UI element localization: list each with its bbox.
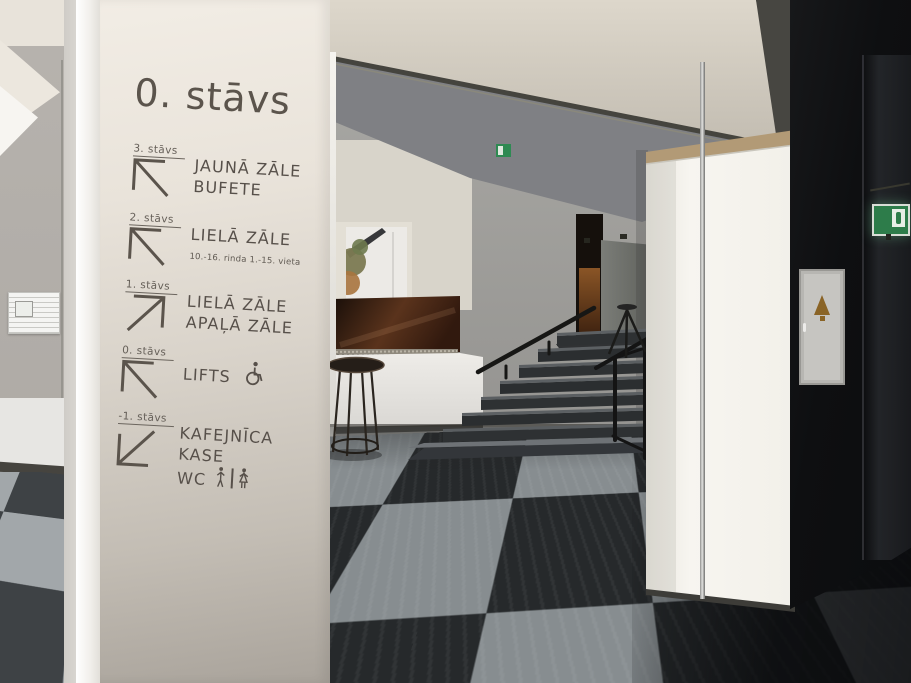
destination-text: WC xyxy=(177,468,207,489)
icon-row xyxy=(239,360,264,387)
pillar-edge xyxy=(76,0,101,683)
sign-title: 0. stāvs xyxy=(133,70,292,123)
entry-destinations: LIFTS xyxy=(182,357,264,389)
fire-hose-cabinet xyxy=(799,269,845,385)
photo-lobby-scene: 0. stāvs 3. stāvs JAUNĀ ZĀLE BUFETE 2. s… xyxy=(0,0,911,683)
destination-text: LIFTS xyxy=(182,365,231,387)
wall-seam xyxy=(61,60,63,450)
door-track-pole xyxy=(700,62,705,599)
sign-entry-floor-2: 2. stāvs LIELĀ ZĀLE 10.-16. rinda 1.-15.… xyxy=(124,211,331,286)
bar-table xyxy=(326,352,396,462)
entry-destinations: KAFEJNĪCA KASE WC xyxy=(176,422,273,493)
wayfinding-pillar: 0. stāvs 3. stāvs JAUNĀ ZĀLE BUFETE 2. s… xyxy=(100,0,330,683)
direction-arrow-up-left-icon xyxy=(117,357,164,404)
table-top xyxy=(328,358,384,373)
destination-line: LIFTS xyxy=(182,357,264,389)
dark-corridor xyxy=(862,55,911,560)
entry-destinations: JAUNĀ ZĀLE BUFETE xyxy=(193,155,302,203)
seat-note: 10.-16. rinda 1.-15. vieta xyxy=(189,247,301,274)
icon-row xyxy=(215,467,250,491)
sign-entry-floor-0: 0. stāvs LIFTS xyxy=(117,344,324,419)
sign-entry-floor-3: 3. stāvs JAUNĀ ZĀLE BUFETE xyxy=(128,142,335,217)
panel-shade xyxy=(646,160,676,595)
wc-men-icon xyxy=(215,467,227,490)
destination-line: WC xyxy=(176,464,271,493)
white-wall-panel xyxy=(640,120,811,620)
pillar-side-face xyxy=(64,0,76,683)
cabinet-handle xyxy=(803,323,806,332)
entry-destinations: LIELĀ ZĀLE 10.-16. rinda 1.-15. vieta xyxy=(189,224,302,274)
divider xyxy=(231,468,234,488)
direction-arrow-up-left-icon xyxy=(125,224,172,271)
evacuation-plan-poster xyxy=(8,292,60,334)
poster-diagram xyxy=(15,301,33,317)
wayfinding-sign: 0. stāvs 3. stāvs JAUNĀ ZĀLE BUFETE 2. s… xyxy=(102,66,339,537)
fire-pictogram-base xyxy=(820,316,825,321)
exit-sign-bracket xyxy=(886,234,891,240)
wc-women-icon xyxy=(238,468,250,491)
direction-arrow-up-right-icon xyxy=(121,291,168,338)
entry-destinations: LIELĀ ZĀLE APAĻĀ ZĀLE xyxy=(185,291,295,339)
hallway-ceiling xyxy=(0,0,66,46)
sign-entry-floor-minus-1: -1. stāvs KAFEJNĪCA KASE WC xyxy=(113,410,320,485)
direction-arrow-up-left-icon xyxy=(129,155,176,202)
exit-sign-icon xyxy=(872,204,910,236)
wheelchair-icon xyxy=(239,360,264,387)
sign-entry-floor-1: 1. stāvs LIELĀ ZĀLE APAĻĀ ZĀLE xyxy=(121,278,328,353)
exit-running-man-icon xyxy=(896,212,901,224)
exit-sign-far-panel xyxy=(498,146,503,155)
direction-arrow-down-left-icon xyxy=(114,423,161,470)
fire-pictogram-icon xyxy=(814,295,830,315)
table-legs xyxy=(333,368,378,456)
